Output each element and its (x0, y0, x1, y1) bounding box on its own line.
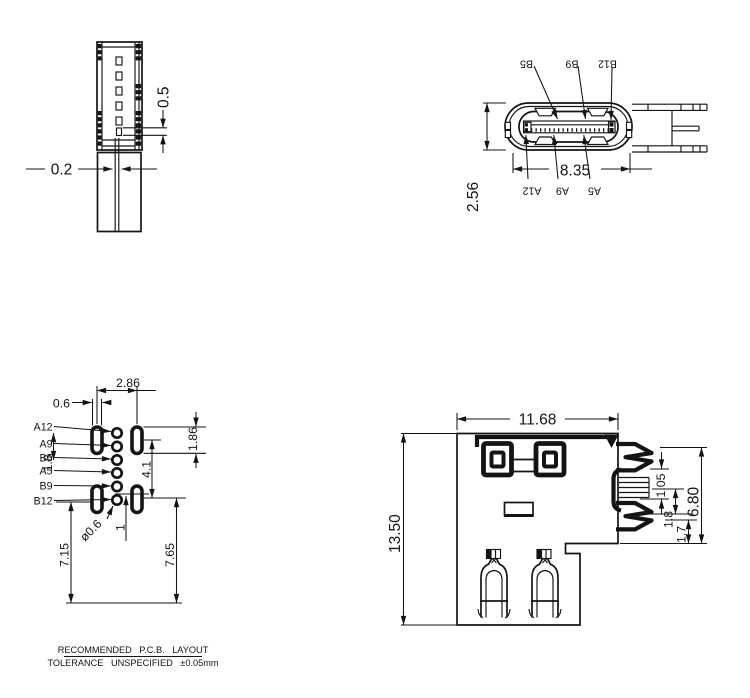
dimension-4p1: 4.1 (140, 440, 187, 498)
drawing-sheet: 0.5 0.2 (0, 0, 750, 698)
mount-pegs (484, 444, 565, 476)
shell-claws (614, 444, 652, 529)
dim-shell-height: 2.56 (465, 182, 482, 212)
mount-side-view: 11.68 13.50 6.80 1.05 1.8 (387, 412, 707, 626)
slot-top-right (132, 427, 142, 454)
dimension-8p35: 8.35 (513, 153, 652, 180)
pcb-label-b9: B9 (40, 481, 53, 493)
notes: RECOMMENDED P.C.B. LAYOUT TOLERANCE UNSP… (47, 645, 218, 668)
dim-pin-row-spacing: 1.8 (41, 454, 55, 471)
pin-label-a9: A9 (556, 185, 569, 197)
dimension-7p15: 7.15 (56, 502, 92, 603)
dim-pin-a: 1.05 (654, 473, 668, 497)
dim-body-height: 13.50 (387, 514, 404, 553)
dim-edge-left: 7.15 (58, 543, 72, 567)
dim-edge-right: 7.65 (163, 543, 177, 567)
dim-slot-height: 1.86 (186, 427, 200, 451)
pcb-layout-view: A12 A9 B5 A5 B9 B12 2.86 0.6 (34, 376, 206, 603)
dim-slot-pitch-y: 4.1 (140, 461, 154, 478)
dim-pin-b: 1.8 (662, 511, 676, 528)
dimension-0p6: 0.6 (53, 397, 111, 426)
dimension-7p65: 7.65 (66, 498, 182, 603)
pin-label-b12: B12 (598, 58, 617, 70)
tongue (524, 121, 616, 133)
dim-slot-width: 0.2 (51, 162, 73, 179)
dim-pin-c: 1.7 (675, 526, 689, 543)
center-window (505, 503, 534, 516)
dimension-0p5: 0.5 (123, 86, 173, 153)
leg-windows (487, 550, 552, 559)
technical-drawing: 0.5 0.2 (0, 0, 750, 698)
dim-pin-span: 6.80 (686, 486, 703, 517)
note-line2: TOLERANCE UNSPECIFIED ±0.05mm (47, 658, 218, 668)
board-lock-legs (478, 559, 561, 618)
front-face-view: B5 B9 B12 A12 A9 A5 8.35 (465, 58, 707, 213)
shell-extension (632, 104, 707, 152)
dimension-2p56: 2.56 (465, 103, 506, 212)
pin-holes (112, 428, 121, 504)
pin-label-a5: A5 (588, 185, 601, 197)
dimension-11p68: 11.68 (457, 412, 618, 431)
slot-bottom-right (132, 486, 142, 513)
side-section-view: 0.5 0.2 (26, 42, 173, 232)
dim-slot-width: 0.6 (53, 397, 70, 411)
note-line1: RECOMMENDED P.C.B. LAYOUT (58, 645, 209, 655)
pin-label-a12: A12 (522, 185, 541, 197)
pcb-label-a9: A9 (40, 439, 53, 451)
dimension-0p2: 0.2 (26, 162, 157, 179)
pcb-label-b12: B12 (34, 496, 53, 508)
dim-pad-pitch: 0.5 (156, 86, 173, 108)
pcb-label-a12: A12 (34, 422, 53, 434)
dim-body-width: 11.68 (519, 412, 557, 429)
dim-slot-pitch-x: 2.86 (116, 376, 140, 390)
dim-pin-offset: 1 (114, 524, 128, 531)
dim-shell-width: 8.35 (560, 163, 590, 180)
contact-pads (116, 57, 122, 136)
dim-hole-diameter: ø0.6 (77, 517, 104, 544)
pin-label-b9: B9 (565, 58, 578, 70)
pin-label-b5: B5 (520, 58, 533, 70)
dimension-2p86: 2.86 (97, 376, 156, 424)
dimension-13p50: 13.50 (387, 434, 456, 626)
